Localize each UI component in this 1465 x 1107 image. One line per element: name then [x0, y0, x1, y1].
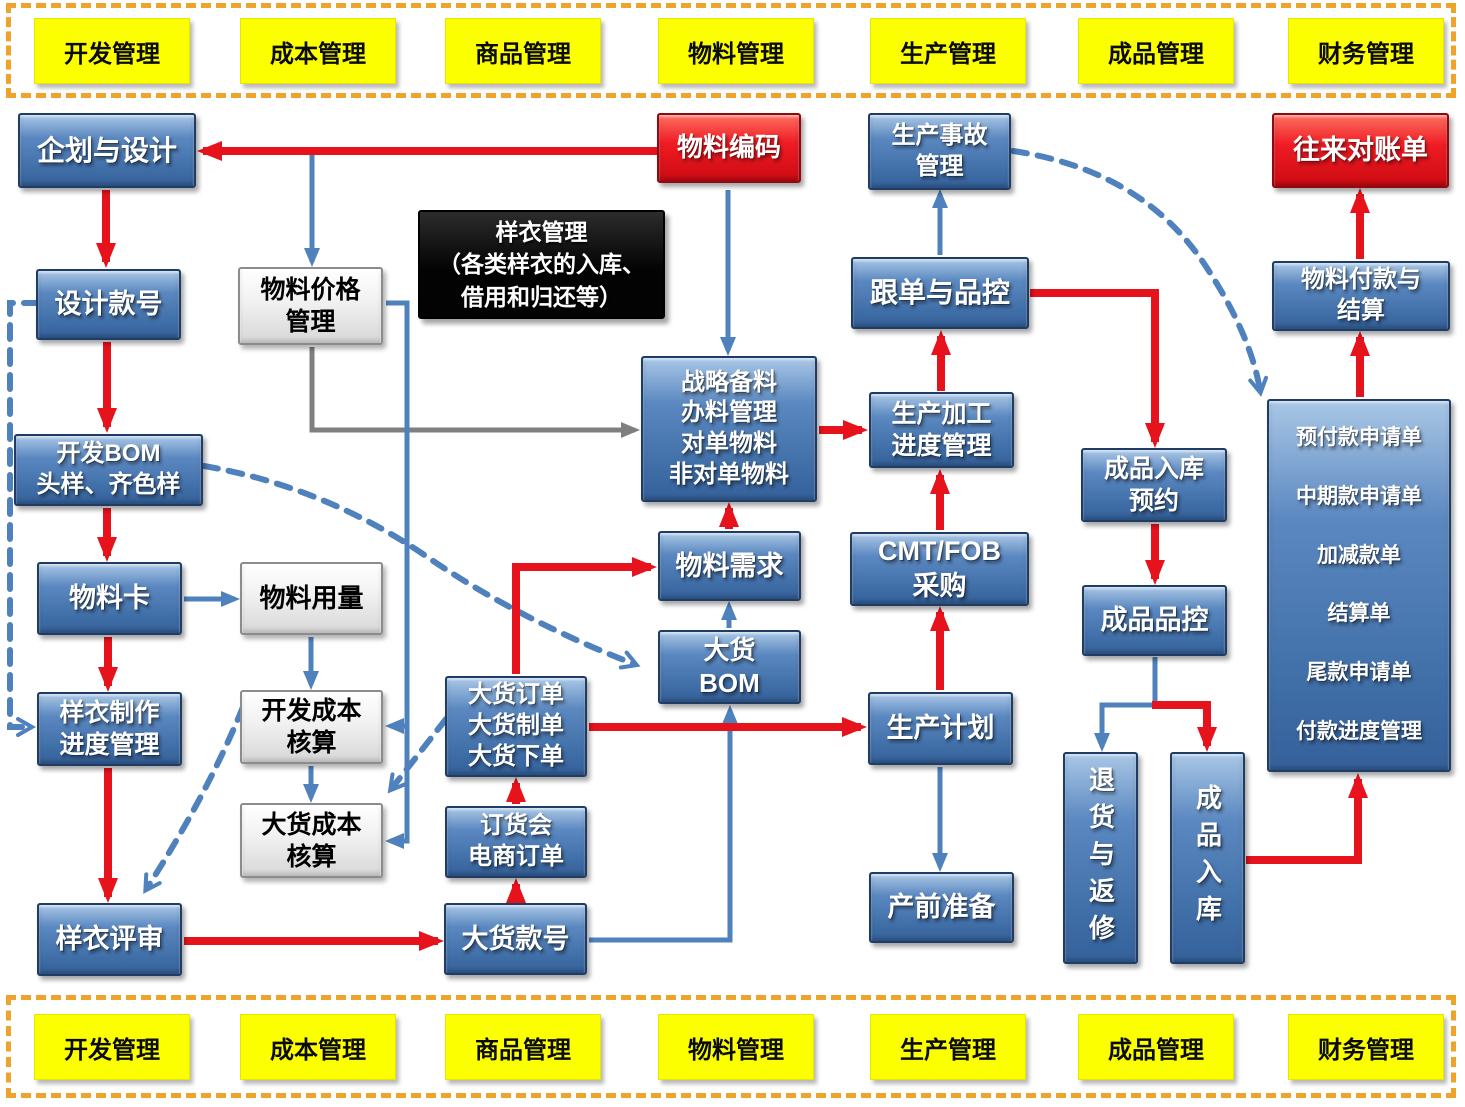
payment-list-item-progress: 付款进度管理: [1296, 703, 1422, 762]
node-material-card: 物料卡: [37, 562, 182, 635]
node-dev-bom: 开发BOM 头样、齐色样: [14, 434, 203, 506]
payment-list-item-settlement: 结算单: [1328, 585, 1391, 644]
node-material-code: 物料编码: [657, 113, 801, 183]
node-material-price: 物料价格 管理: [238, 267, 383, 345]
node-returns-repair: 退货与返修: [1063, 752, 1138, 964]
node-sample-review: 样衣评审: [37, 903, 182, 976]
arrow-inbound-to-payment-list: [1246, 779, 1358, 860]
node-planning-design: 企划与设计: [18, 113, 196, 188]
node-strategic-material: 战略备料 办料管理 对单物料 非对单物料: [641, 356, 817, 502]
dashed-design-style-to-sample-progress: [10, 303, 38, 727]
dashed-bulk-order-to-bulk-cost: [392, 719, 446, 788]
node-material-payment: 物料付款与 结算: [1272, 261, 1450, 331]
node-bulk-style-no: 大货款号: [444, 903, 587, 975]
node-production-accident: 生产事故 管理: [868, 113, 1011, 190]
dashed-accident-to-payment-list: [1013, 151, 1260, 390]
node-payment-list: 预付款申请单 中期款申请单 加减款单 结算单 尾款申请单 付款进度管理: [1267, 399, 1451, 772]
payment-list-item-interim: 中期款申请单: [1296, 468, 1422, 527]
node-material-usage: 物料用量: [240, 562, 383, 635]
node-merchandising-qc: 跟单与品控: [851, 257, 1029, 329]
node-dev-cost: 开发成本 核算: [240, 690, 383, 764]
arrow-fg-qc-to-returns: [1102, 705, 1157, 747]
node-bulk-bom: 大货 BOM: [658, 630, 801, 704]
node-bulk-cost: 大货成本 核算: [240, 803, 383, 878]
node-pre-production: 产前准备: [869, 872, 1014, 943]
node-bulk-order: 大货订单 大货制单 大货下单: [445, 676, 587, 777]
payment-list-item-advance: 预付款申请单: [1296, 409, 1422, 468]
payment-list-item-balance: 尾款申请单: [1307, 644, 1412, 703]
node-cmt-fob: CMT/FOB 采购: [850, 532, 1029, 606]
node-order-fair: 订货会 电商订单: [445, 806, 587, 878]
node-reconciliation: 往来对账单: [1272, 113, 1449, 188]
node-production-progress: 生产加工 进度管理: [869, 392, 1014, 468]
arrow-material-price-to-dev-cost: [386, 303, 407, 726]
flowchart-canvas: 开发管理 成本管理 商品管理 物料管理 生产管理 成品管理 财务管理 开发管理 …: [0, 0, 1465, 1107]
arrow-fg-qc-to-inbound: [1152, 705, 1207, 746]
node-material-demand: 物料需求: [658, 531, 801, 601]
node-sample-garment-note: 样衣管理 （各类样衣的入库、 借用和归还等）: [418, 210, 665, 319]
node-production-plan: 生产计划: [868, 692, 1013, 765]
node-fg-inbound-booking: 成品入库 预约: [1081, 448, 1227, 522]
arrow-qc-to-inbound-booking: [1030, 293, 1155, 442]
arrow-bulk-style-to-bulk-bom: [589, 710, 730, 940]
arrow-material-price-to-strategic: [312, 347, 635, 430]
node-design-style-no: 设计款号: [36, 269, 181, 340]
payment-list-item-adjustment: 加减款单: [1317, 527, 1401, 586]
node-fg-inbound: 成品入库: [1170, 752, 1245, 964]
arrow-bulk-order-to-demand: [516, 567, 651, 674]
node-sample-progress: 样衣制作 进度管理: [37, 692, 182, 766]
node-fg-qc: 成品品控: [1082, 585, 1227, 656]
